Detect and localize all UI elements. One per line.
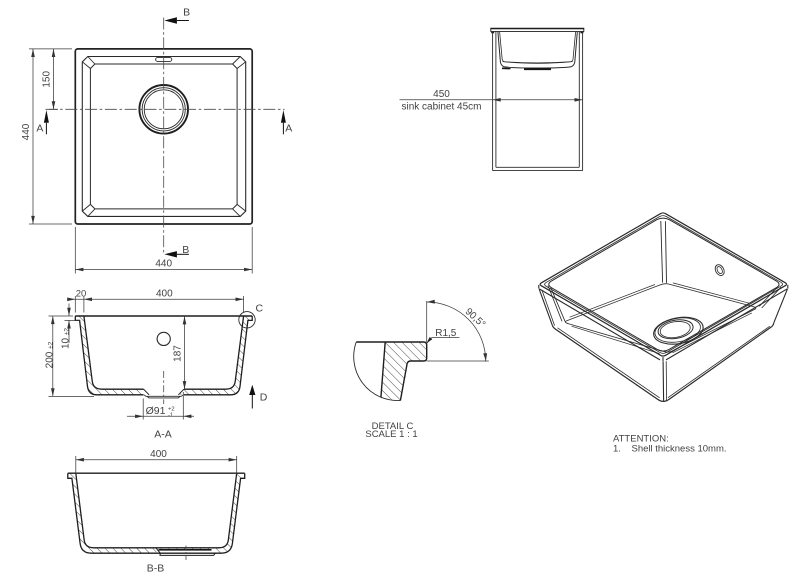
svg-text:C: C — [256, 303, 264, 315]
svg-text:B: B — [183, 7, 190, 19]
svg-text:-1: -1 — [168, 413, 173, 419]
svg-text:400: 400 — [156, 289, 173, 300]
svg-text:450: 450 — [433, 89, 450, 100]
svg-text:440: 440 — [155, 259, 172, 270]
svg-text:B: B — [182, 244, 189, 256]
svg-text:150: 150 — [42, 71, 53, 88]
svg-text:D: D — [260, 392, 268, 404]
svg-text:10 ±2: 10 ±2 — [60, 328, 71, 349]
svg-text:200 ±2: 200 ±2 — [44, 341, 55, 368]
svg-text:Ø91: Ø91 — [146, 405, 166, 417]
svg-text:440: 440 — [21, 123, 32, 140]
svg-text:400: 400 — [150, 449, 167, 460]
svg-text:sink cabinet 45cm: sink cabinet 45cm — [401, 101, 481, 112]
svg-text:A: A — [285, 122, 292, 134]
svg-text:20: 20 — [76, 289, 87, 300]
svg-text:B-B: B-B — [147, 563, 165, 575]
svg-text:A: A — [36, 122, 43, 134]
svg-text:1. Shell thickness 10mm.: 1. Shell thickness 10mm. — [613, 444, 727, 455]
svg-text:187: 187 — [173, 345, 184, 362]
svg-text:A-A: A-A — [154, 429, 172, 441]
svg-text:SCALE 1 : 1: SCALE 1 : 1 — [365, 429, 417, 440]
